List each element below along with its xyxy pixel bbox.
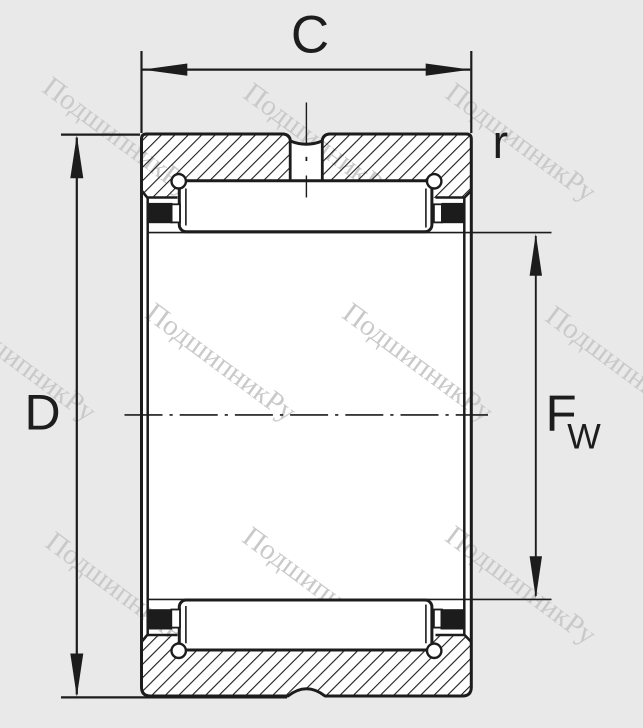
- svg-text:W: W: [567, 417, 601, 457]
- svg-text:C: C: [291, 6, 329, 65]
- svg-text:r: r: [493, 115, 509, 168]
- svg-text:D: D: [24, 385, 60, 441]
